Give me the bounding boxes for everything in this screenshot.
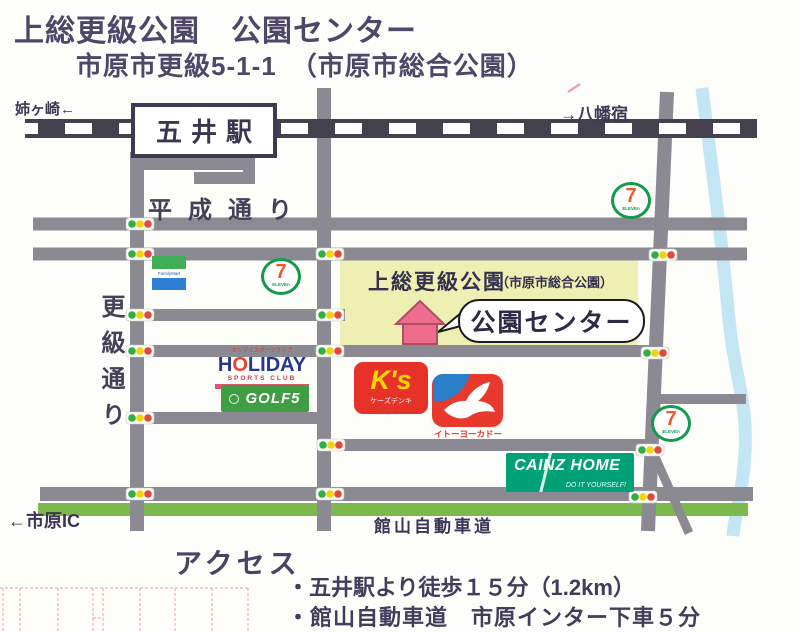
road-label-sarashina-dori: 更級通り — [93, 294, 128, 438]
expressway-label: 館山自動車道 — [374, 512, 494, 537]
holiday-sports-club-logo: ホリデイスポーツクラブ HOLIDAY SPORTS CLUB — [215, 348, 309, 389]
park-subname: （市原市総合公園） — [496, 272, 613, 291]
scan-artifact-grid — [0, 588, 250, 632]
traffic-light-icon — [316, 248, 344, 260]
station-loop-road — [131, 164, 249, 178]
traffic-light-icon — [316, 309, 344, 321]
direction-anegasaki: 姉ヶ崎← — [15, 98, 75, 119]
traffic-light-icon — [126, 488, 154, 500]
traffic-light-icon — [317, 439, 345, 451]
traffic-light-icon — [629, 491, 657, 503]
access-item-walk: ・五井駅より徒歩１５分（1.2km） — [287, 570, 635, 602]
seven-eleven-icon: 7 ELEVEn — [651, 405, 691, 442]
traffic-light-icon — [636, 444, 664, 456]
traffic-light-icon — [649, 249, 677, 261]
seven-eleven-small-label: ELEVEn — [654, 430, 688, 434]
seven-eleven-icon: 7 ELEVEn — [261, 258, 301, 295]
scan-artifact-mark — [568, 84, 580, 92]
traffic-light-icon — [316, 345, 344, 357]
address-line: 市原市更級5-1-1 （市原市総合公園） — [76, 46, 534, 83]
familymart-logo: FamilyMart — [152, 256, 186, 290]
traffic-light-icon — [126, 345, 154, 357]
traffic-light-icon — [126, 248, 154, 260]
station-label: 五井駅 — [133, 105, 275, 156]
access-heading: アクセス — [174, 542, 301, 582]
ito-yokado-logo — [432, 374, 503, 427]
holiday-letter: H — [218, 354, 232, 376]
holiday-sub-text: SPORTS CLUB — [215, 375, 309, 383]
traffic-light-icon — [126, 412, 154, 424]
familymart-green-bar — [152, 256, 186, 269]
cainz-name: CAINZ HOME — [514, 457, 620, 475]
page-title: 上総更級公園 公園センター — [14, 6, 417, 50]
traffic-light-icon — [641, 347, 669, 359]
seven-eleven-seven: 7 — [654, 408, 688, 430]
traffic-light-icon — [126, 309, 154, 321]
holiday-name: HOLIDAY — [215, 355, 309, 375]
ks-denki-name: K's — [354, 362, 428, 398]
familymart-blue-bar — [152, 278, 186, 290]
direction-yawatajuku: →八幡宿 — [560, 100, 628, 125]
golf5-ball-icon — [229, 394, 239, 404]
access-item-drive: ・館山自動車道 市原インター下車５分 — [287, 600, 701, 632]
ichihara-ic-label: ←市原IC — [8, 507, 80, 533]
ito-yokado-label: イトーヨーカドー — [430, 428, 506, 440]
park-name: 上総更級公園 — [368, 266, 506, 296]
seven-eleven-seven: 7 — [614, 185, 648, 207]
golf5-label: GOLF5 — [245, 390, 300, 407]
holiday-letters: LIDAY — [248, 354, 306, 376]
river — [702, 88, 745, 536]
seven-eleven-small-label: ELEVEn — [264, 283, 298, 287]
ks-denki-sub: ケーズデンキ — [354, 398, 428, 405]
cainz-home-logo: CAINZ HOME DO IT YOURSELF! — [506, 453, 634, 492]
park-center-bubble: 公園センター — [458, 299, 645, 343]
seven-eleven-small-label: ELEVEn — [614, 207, 648, 211]
seven-eleven-seven: 7 — [264, 261, 298, 283]
holiday-letter-o: O — [232, 354, 248, 376]
golf5-logo: GOLF5 — [221, 385, 309, 412]
seven-eleven-icon: 7 ELEVEn — [611, 182, 651, 219]
traffic-light-icon — [316, 488, 344, 500]
ks-denki-logo: K's ケーズデンキ — [354, 362, 428, 414]
cainz-sub: DO IT YOURSELF! — [566, 482, 626, 489]
familymart-label: FamilyMart — [152, 269, 186, 278]
road-label-heisei-dori: 平成通り — [148, 190, 308, 225]
ito-yokado-dove-icon — [432, 374, 503, 427]
